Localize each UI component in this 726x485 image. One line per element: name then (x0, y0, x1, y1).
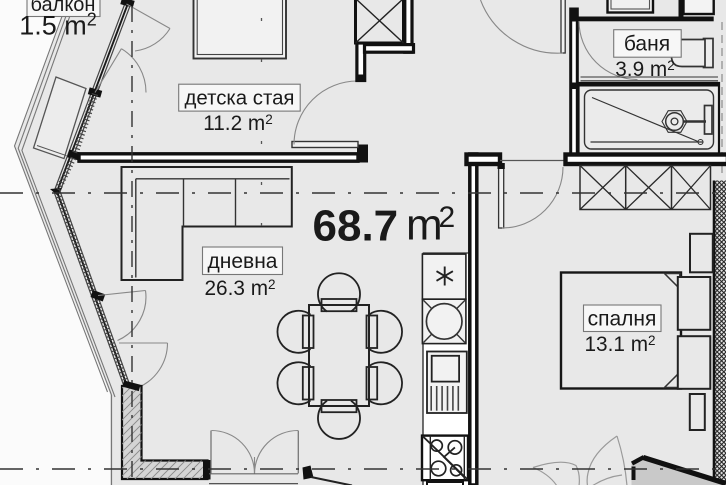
svg-text:26.3 m2: 26.3 m2 (204, 277, 275, 300)
svg-text:11.2 m2: 11.2 m2 (203, 112, 273, 135)
svg-text:13.1 m2: 13.1 m2 (584, 333, 655, 356)
svg-text:3.9 m2: 3.9 m2 (615, 58, 675, 81)
svg-text:баня: баня (624, 33, 670, 56)
svg-text:1.5 m2: 1.5 m2 (19, 10, 97, 41)
svg-text:m: m (406, 201, 443, 250)
svg-text:2: 2 (439, 201, 456, 234)
svg-text:детска стая: детска стая (185, 88, 295, 110)
svg-text:дневна: дневна (208, 250, 278, 273)
svg-text:спалня: спалня (588, 308, 657, 331)
svg-text:68.7: 68.7 (313, 202, 399, 251)
